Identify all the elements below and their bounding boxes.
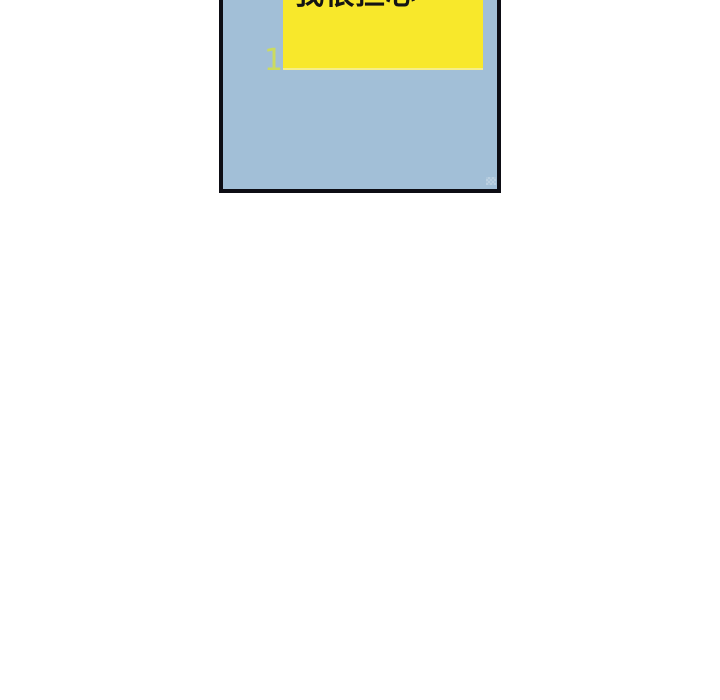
speech-bubble-text: 我很担心	[294, 0, 416, 10]
panel-number: 1	[264, 46, 283, 76]
comic-page: 我很担心 1	[0, 0, 720, 700]
